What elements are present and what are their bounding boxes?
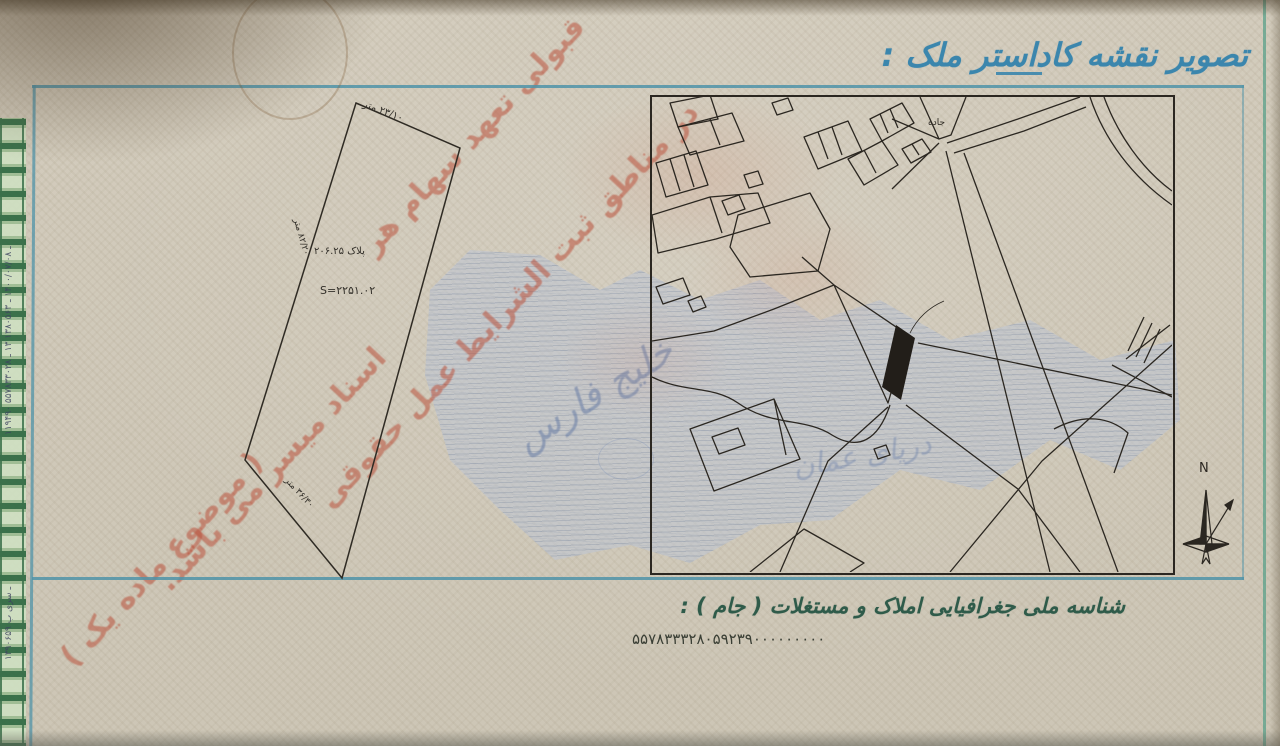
margin-serial-lower: ۱۳۹۰۶۵۹ ـ سری ب <box>4 440 14 660</box>
cadastral-map-box <box>650 95 1175 575</box>
margin-serial-upper: ۱۱۹۴۹۰ ـ ۱۴۰۰/۰۷/۰۸ ـ ۱۳۸۰۵۶۳ ۱۳ ـ ۵۵۷۸۳… <box>4 135 14 435</box>
parcel-area-value: S=۲۲۵۱.۰۲ <box>320 284 375 297</box>
jam-id-number: ۵۵۷۸۳۳۳۲۸۰۵۹۲۳۹۰۰۰۰۰۰۰۰۰ <box>632 630 825 648</box>
map-road-label: جاده <box>928 118 945 128</box>
parcel-outline <box>245 103 460 578</box>
scan-shadow-right <box>1270 0 1280 746</box>
jam-id-label: شناسه ملی جغرافیایی املاک و مستغلات ( جا… <box>945 594 1125 618</box>
page-title: تصویر نقشه کاداستر ملک : <box>881 36 1248 74</box>
cadastral-map-drawing <box>652 97 1172 572</box>
page-edge-rule-right <box>1263 0 1266 746</box>
scan-shadow-bottom <box>0 730 1280 746</box>
compass-rose: N <box>1175 452 1245 574</box>
frame-rule-left <box>29 85 35 746</box>
scan-shadow-top-left <box>0 0 400 170</box>
scanned-deed-page: خلیج فارس دریای عمان قبولی تعهد سهام هر … <box>0 0 1280 746</box>
compass-north-label: N <box>1199 461 1209 476</box>
frame-rule-bottom <box>32 577 1244 580</box>
scan-shadow-top <box>0 0 1280 16</box>
subject-parcel-fill <box>882 325 915 400</box>
sea-sketch-circle <box>598 438 654 480</box>
parcel-plate-number: پلاک ۲۰۶.۲۵ <box>314 246 365 257</box>
